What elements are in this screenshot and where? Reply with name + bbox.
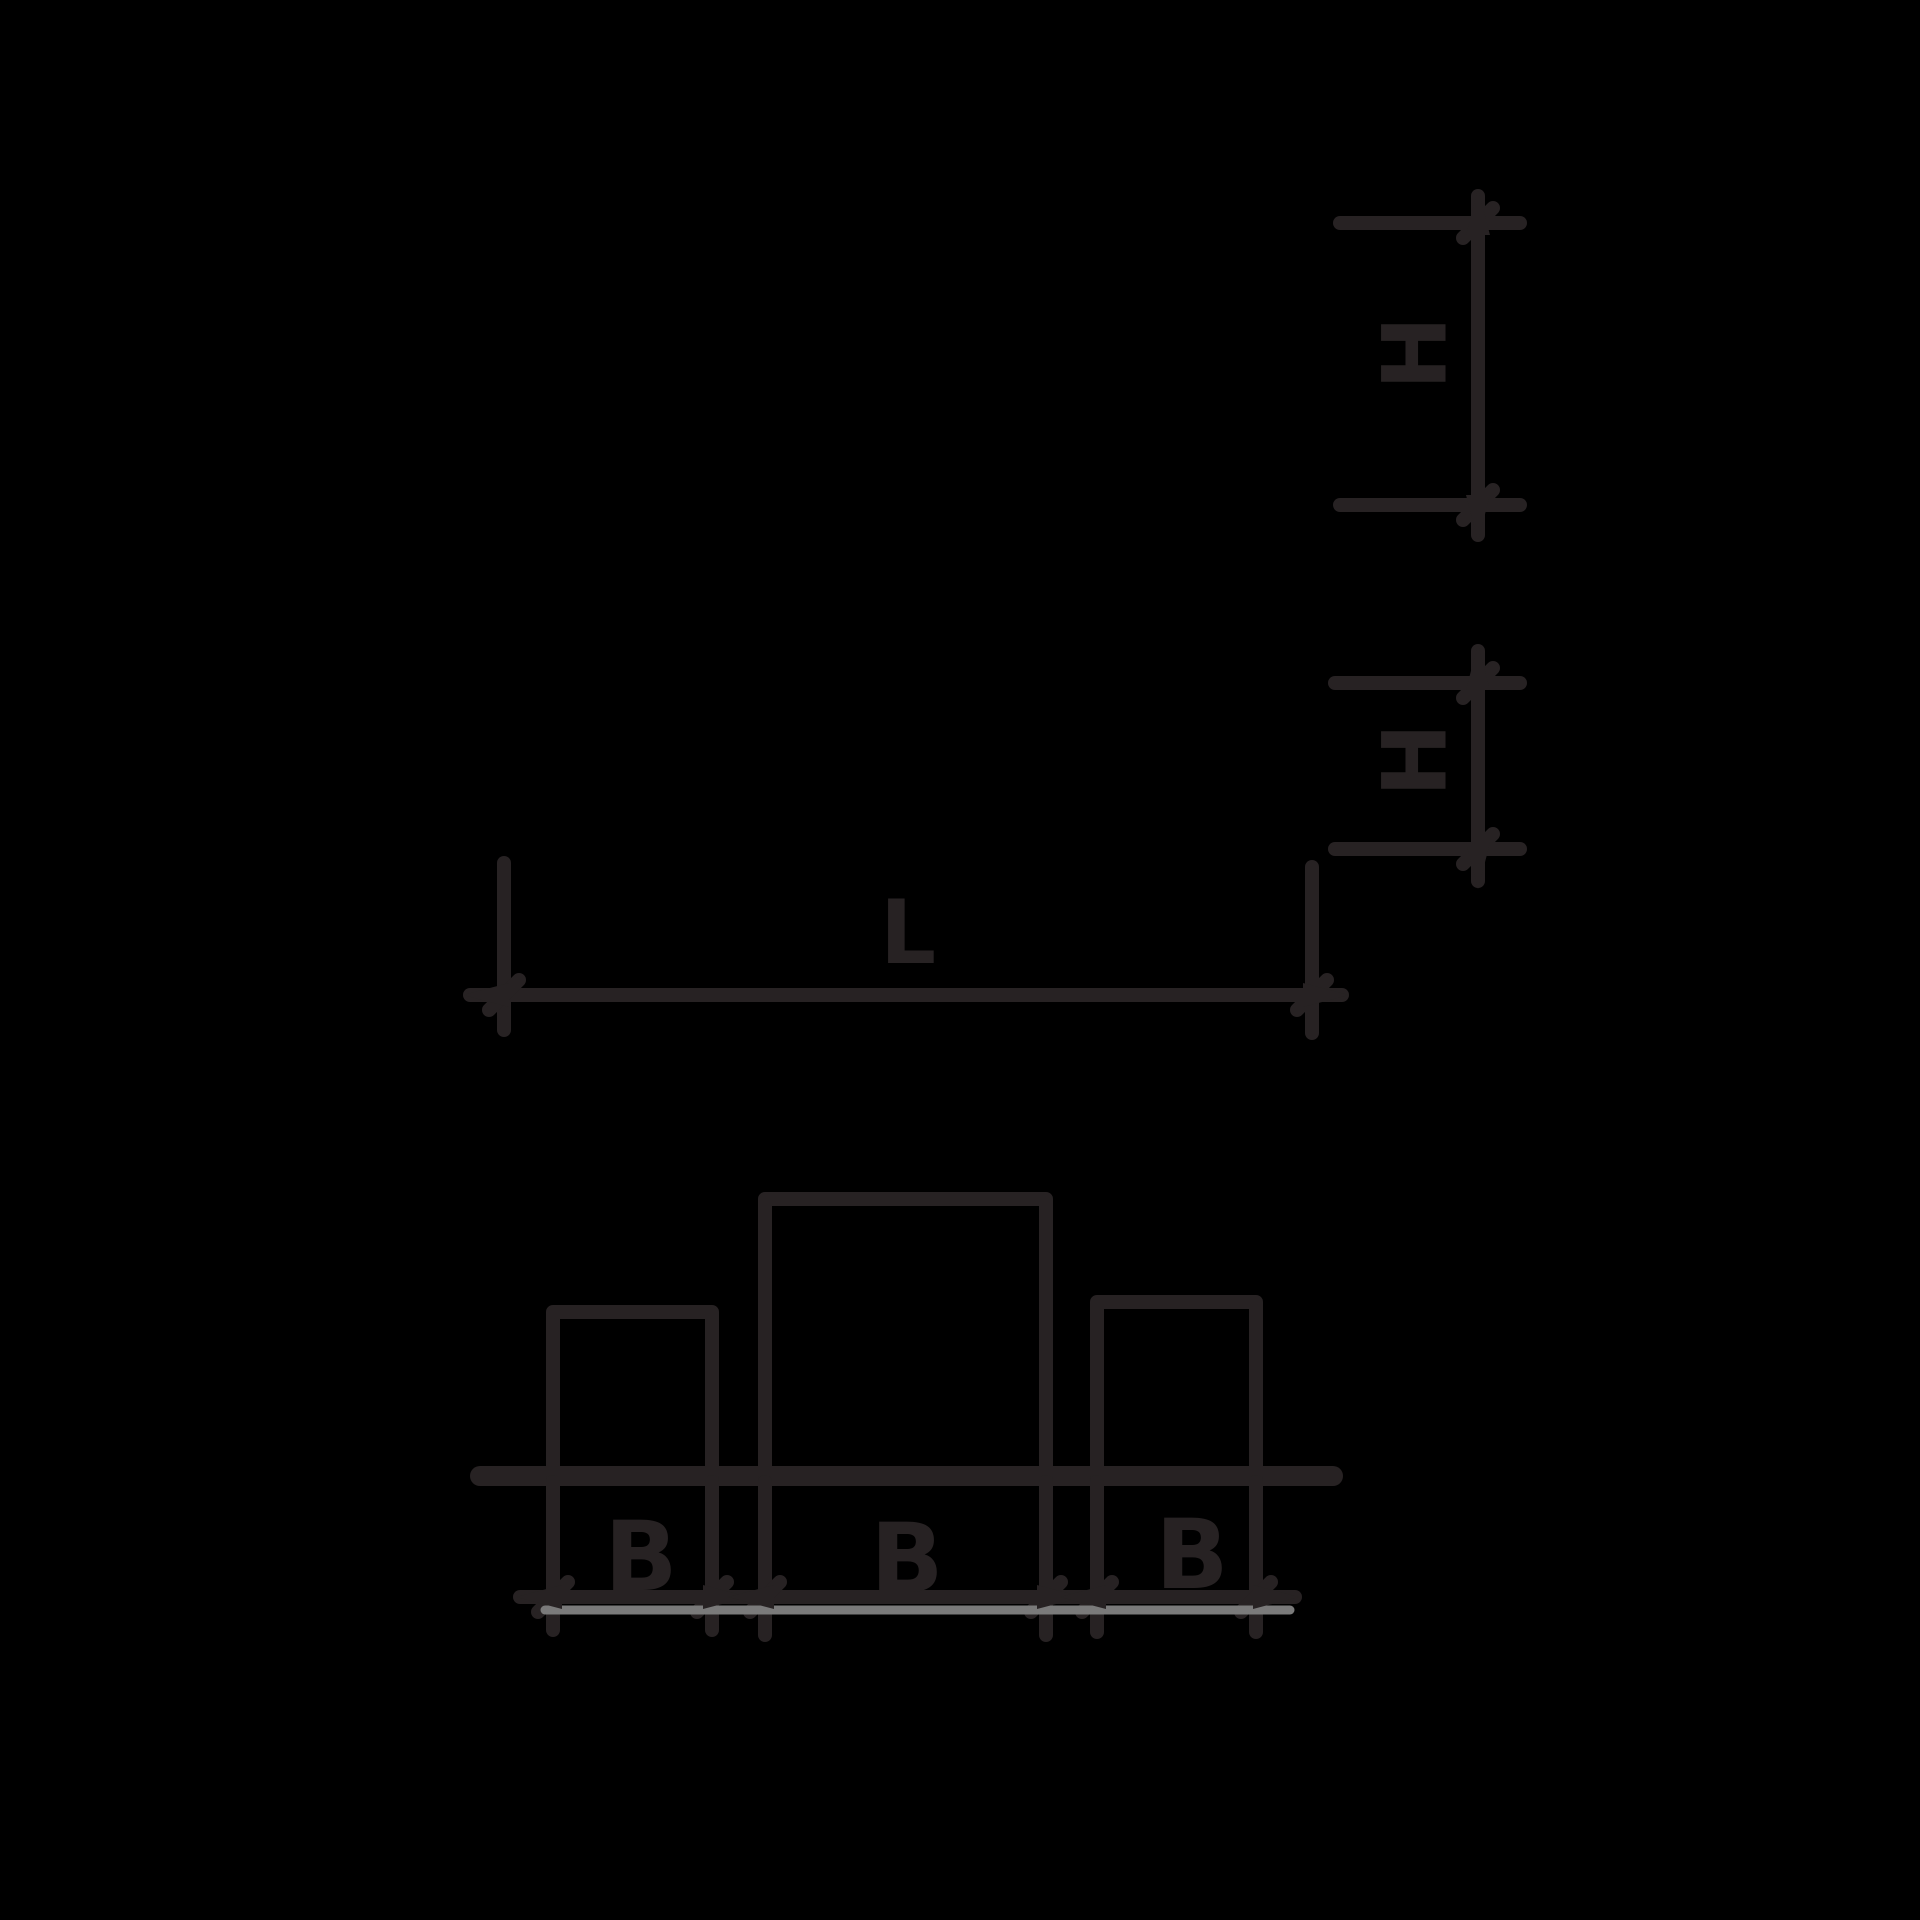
dimension-diagram: H H L B B B: [0, 0, 1920, 1920]
dimension-diagram-page: H H L B B B: [0, 0, 1920, 1920]
upper-height-label: H: [1364, 316, 1467, 390]
length-label: L: [880, 881, 936, 984]
width-middle-label: B: [870, 1503, 943, 1615]
width-right-label: B: [1155, 1499, 1228, 1611]
lower-height-label: H: [1364, 723, 1467, 797]
width-left-label: B: [604, 1501, 677, 1613]
diagram-background: [0, 0, 1920, 1920]
